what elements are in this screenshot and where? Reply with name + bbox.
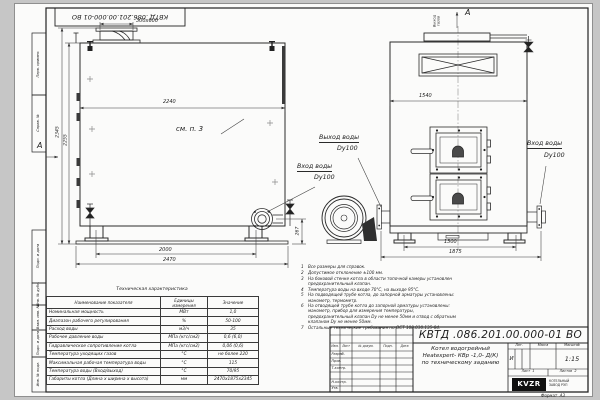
table-row: Гидравлическое сопротивление котлаМПа (к… (47, 342, 259, 350)
note-item: 4Температура воды на входе 70°С, на выхо… (301, 287, 459, 292)
col-data: Дата (396, 345, 413, 348)
table-row: Максимальная рабочая температура воды°С1… (47, 359, 259, 367)
boiler-front-view (377, 26, 546, 250)
dim-2345: 2345 (57, 126, 62, 138)
tech-table: Наименование показателя Единицы измерени… (46, 296, 259, 385)
margin-label-vzam-inv: Взам. инв. № (37, 305, 41, 329)
col-list: Лист (340, 345, 352, 348)
stamp-number-top: КВТД .086.201.00.000-01 ВО (55, 8, 185, 26)
water-outlet-dn: Dy100 (337, 146, 358, 152)
format-label: Формат (541, 393, 557, 398)
margin-label-inv-podl: Инв. № подл. (37, 362, 41, 387)
scale-value: 1:15 (556, 349, 588, 369)
row-utv: Утв. (332, 387, 339, 390)
kvzr-logo: KVZR (512, 378, 546, 391)
dim-1540: 1540 (419, 94, 432, 99)
col-podp: Подп. (380, 345, 396, 348)
dim-2000: 2000 (159, 248, 172, 253)
blower-fan (322, 196, 377, 244)
margin-label-perv-primen: Перв. примен. (37, 51, 41, 78)
drawing-title: Котел водогрейный Heatexpert- КВр -1,0- … (413, 346, 508, 368)
row-nkontr: Н.контр. (332, 381, 347, 384)
dim-1300: 1300 (444, 240, 457, 245)
notes-list: 1Все размеры для справок. 2Допустимое от… (301, 264, 459, 330)
table-row: Диапазон рабочего регулирования%50-100 (47, 317, 259, 325)
row-prov: Пров. (332, 360, 342, 363)
col-izm: Изм. (330, 345, 340, 348)
margin-label-podp-data-2: Подп. и дата (37, 331, 41, 355)
lower-door (411, 174, 491, 220)
table-row: Габариты котла (Длина х ширина х высота)… (47, 376, 259, 384)
title-line-1: Котел водогрейный (413, 346, 508, 353)
drain-valve-icon (86, 200, 294, 226)
lit-value: И (508, 349, 515, 369)
leader-lines (221, 119, 546, 212)
drawing-number: КВТД .086.201.00.000-01 ВО (413, 327, 588, 343)
tech-col-units: Единицы измерения (161, 297, 208, 309)
note-item: 6На отводящей трубе котла до запорной ар… (301, 303, 459, 324)
dim-2240: 2240 (163, 100, 176, 105)
note-item: 3На боковой стенке котла в области топоч… (301, 276, 459, 286)
mass-header: Масса (530, 344, 556, 347)
side-inlet-label: Вход воды (297, 164, 332, 172)
title-line-2: Heatexpert- КВр -1,0- Д(К) (413, 353, 508, 360)
drawing-page: { "frame": { "stamp_number": "КВТД .086.… (0, 0, 600, 400)
table-row: Расход водым3/ч35 (47, 325, 259, 333)
table-row: Рабочее давление водыМПа (кгс/см2)0,6 (6… (47, 334, 259, 342)
air-vent-valve-icon (524, 40, 533, 52)
note-item: 5На подводящей трубе котла, до запорной … (301, 292, 459, 302)
note-item: 2Допустимое отклонение ±100 мм. (301, 270, 459, 275)
note-item: 1Все размеры для справок. (301, 264, 459, 269)
format-value: А3 (560, 393, 565, 398)
sheet-value: 1 (532, 369, 534, 373)
boiler-side-view (74, 28, 295, 244)
section-arrow-label: А (37, 142, 42, 150)
dimension-lines (46, 12, 541, 268)
row-razrab: Разраб. (332, 353, 345, 356)
upper-door (411, 127, 491, 173)
sheets-label: Листов (560, 369, 573, 373)
col-ndokum: № докум. (352, 345, 380, 348)
water-inlet-label: Вход воды (527, 141, 562, 149)
see-note-ref: см. п. 3 (176, 126, 203, 133)
sheets-cell: Листов 2 (548, 370, 588, 373)
tech-table-title: Техническая характеристика (46, 288, 258, 293)
margin-label-inv-dubl: Инв. № дубл. (37, 282, 41, 307)
dim-2255: 2255 (65, 134, 70, 146)
lit-header: Лит. (508, 344, 530, 347)
dim-chimney: 300x600 (136, 19, 158, 24)
dim-1875: 1875 (449, 250, 462, 255)
water-outlet-label: Выход воды (319, 135, 359, 143)
format-note: Формат А3 (541, 394, 565, 398)
table-row: Температура воды (Вход/выход)°С70/95 (47, 367, 259, 375)
inlet-flange (527, 206, 546, 228)
tech-col-name: Наименование показателя (47, 297, 161, 309)
scale-header: Масштаб (556, 344, 588, 347)
margin-label-sprav-no: Справ. № (37, 114, 41, 131)
tech-col-value: Значение (208, 297, 259, 309)
sheet-cell: Лист 1 (508, 370, 548, 373)
logo-caption: КОТЕЛЬНЫЙ ЗАВОД РЭП (549, 379, 587, 387)
dim-267: 267 (297, 227, 302, 236)
water-inlet-dn: Dy100 (544, 153, 565, 159)
view-a-label: А (465, 9, 470, 17)
side-inlet-dn: Dy100 (314, 175, 335, 181)
title-line-3: по техническому заданию (413, 360, 508, 367)
explosion-hatch (419, 54, 497, 76)
outlet-flange (377, 205, 390, 229)
sheets-value: 2 (574, 369, 576, 373)
margin-label-podp-data-1: Подп. и дата (37, 244, 41, 268)
row-tkontr: Т.контр. (332, 367, 347, 370)
table-row: Температура уходящих газов°Сне более 220 (47, 350, 259, 358)
sheet-label: Лист (522, 369, 531, 373)
dim-2470: 2470 (163, 258, 176, 263)
table-row: Номинальная мощностьМВт1,0 (47, 309, 259, 317)
gas-outlet-label: Выход газов (433, 15, 442, 27)
